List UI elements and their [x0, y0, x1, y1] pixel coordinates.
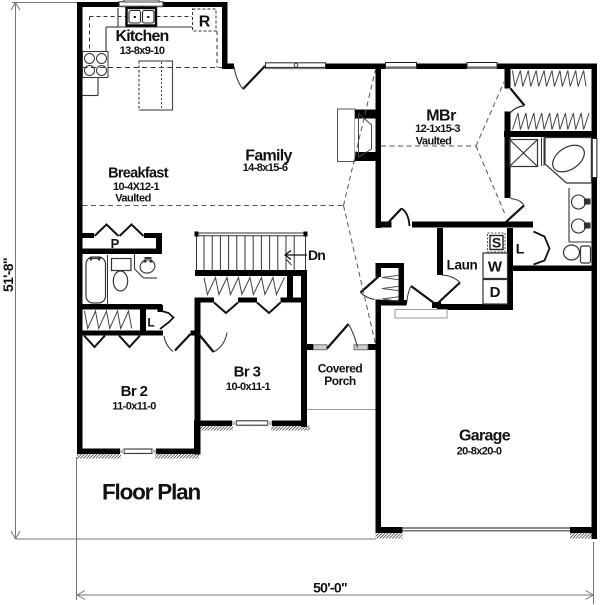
- svg-text:51'-8": 51'-8": [0, 258, 16, 292]
- svg-text:Vaulted: Vaulted: [115, 193, 151, 205]
- svg-text:13-8x9-10: 13-8x9-10: [120, 45, 165, 57]
- svg-text:14-8x15-6: 14-8x15-6: [243, 162, 288, 174]
- svg-text:Br 3: Br 3: [234, 364, 261, 381]
- svg-text:Laun: Laun: [447, 258, 478, 273]
- svg-text:Porch: Porch: [324, 374, 356, 388]
- svg-text:L: L: [516, 241, 525, 257]
- svg-text:W: W: [488, 259, 503, 276]
- svg-text:11-0x11-0: 11-0x11-0: [112, 401, 156, 413]
- svg-text:10-0x11-1: 10-0x11-1: [226, 381, 271, 393]
- svg-text:Breakfast: Breakfast: [108, 166, 169, 182]
- svg-text:R: R: [199, 14, 211, 31]
- svg-text:S: S: [492, 235, 501, 251]
- svg-text:Br 2: Br 2: [121, 383, 148, 400]
- svg-text:12-1x15-3: 12-1x15-3: [415, 123, 460, 135]
- svg-text:Garage: Garage: [459, 428, 511, 445]
- svg-text:Vaulted: Vaulted: [416, 136, 452, 148]
- svg-text:Kitchen: Kitchen: [115, 28, 168, 45]
- svg-text:Dn: Dn: [308, 247, 325, 263]
- svg-text:20-8x20-0: 20-8x20-0: [457, 446, 502, 458]
- svg-text:50'-0": 50'-0": [313, 580, 347, 596]
- svg-text:P: P: [111, 236, 120, 251]
- svg-text:D: D: [490, 284, 501, 301]
- svg-text:10-4X12-1: 10-4X12-1: [113, 181, 159, 193]
- svg-text:MBr: MBr: [426, 108, 456, 125]
- svg-text:L: L: [147, 316, 154, 330]
- svg-text:Floor Plan: Floor Plan: [102, 480, 200, 505]
